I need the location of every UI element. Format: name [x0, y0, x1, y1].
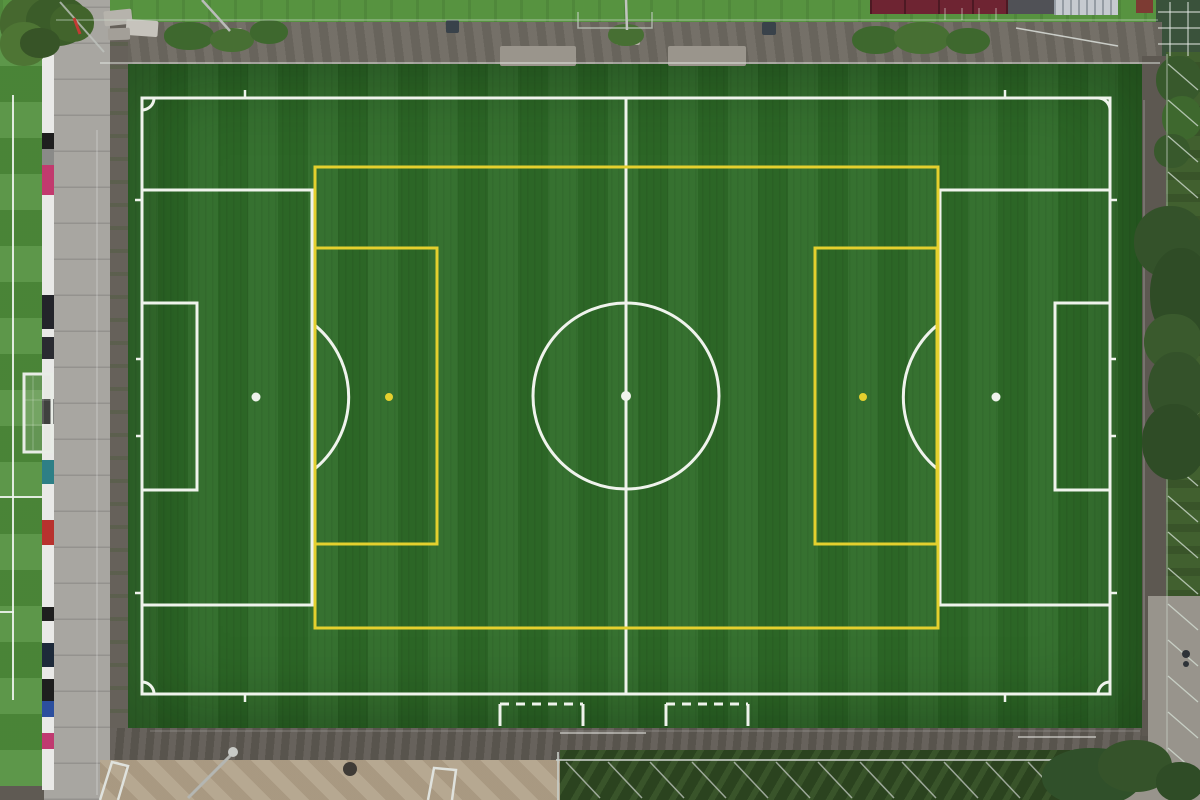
ballstop-cage-brace: [902, 762, 936, 798]
adjacent-pitch-goal: [24, 374, 52, 452]
manhole-cover: [343, 762, 357, 776]
yellow-box-right: [815, 248, 937, 544]
goal-area-left: [142, 303, 197, 490]
penalty-arc-left: [312, 323, 349, 471]
person-on-path: [1183, 661, 1189, 667]
corner-fence-diagonal: [60, 2, 104, 52]
penalty-spot-left: [253, 394, 259, 400]
center-spot: [623, 393, 630, 400]
ballstop-cage-brace: [734, 762, 768, 798]
tree-canopy: [1142, 404, 1200, 480]
floodlight-pole-topleft: [202, 0, 230, 31]
goal-area-right: [1055, 303, 1110, 490]
floodlight-pole-bottom: [188, 754, 232, 798]
ballstop-cage-brace: [566, 762, 600, 798]
right-fence-brace: [1168, 100, 1198, 126]
floodlight-lamp-head: [228, 747, 238, 757]
ballstop-cage-brace: [650, 762, 684, 798]
right-fence-brace: [1168, 568, 1198, 594]
right-fence-brace: [1168, 712, 1198, 738]
stored-bench-frame: [428, 768, 456, 800]
penalty-area-left: [142, 190, 312, 605]
right-fence-brace: [1168, 496, 1198, 522]
penalty-area-right: [940, 190, 1110, 605]
person-on-path: [1182, 650, 1190, 658]
right-fence-brace: [1168, 604, 1198, 630]
right-fence-brace: [1168, 64, 1198, 90]
ballstop-cage-brace: [692, 762, 726, 798]
corner-arc-bl: [142, 682, 154, 694]
ballstop-cage-brace: [776, 762, 810, 798]
markings-layer: [0, 0, 1200, 800]
yellow-spot-right: [861, 395, 866, 400]
ballstop-cage-brace: [608, 762, 642, 798]
ballstop-cage-brace: [986, 762, 1020, 798]
right-fence-brace: [1168, 172, 1198, 198]
right-fence-brace: [1168, 136, 1198, 162]
ballstop-cage-brace: [944, 762, 978, 798]
corner-arc-br: [1098, 682, 1110, 694]
yellow-box-left: [315, 248, 437, 544]
stored-bench-frame: [100, 762, 128, 800]
tree-canopy: [1156, 762, 1200, 800]
penalty-spot-right: [993, 394, 999, 400]
right-fence-brace: [1168, 676, 1198, 702]
yellow-spot-left: [387, 395, 392, 400]
railing-diagonal-topright: [1016, 28, 1118, 46]
penalty-arc-right: [903, 323, 940, 471]
corner-arc-tl: [142, 98, 154, 110]
floodlight-pole-topcenter: [626, 0, 627, 30]
aerial-soccer-field-photo: [0, 0, 1200, 800]
ballstop-cage-brace: [818, 762, 852, 798]
corner-arc-tr: [1098, 98, 1110, 110]
ballstop-cage-brace: [860, 762, 894, 798]
right-fence-brace: [1168, 532, 1198, 558]
